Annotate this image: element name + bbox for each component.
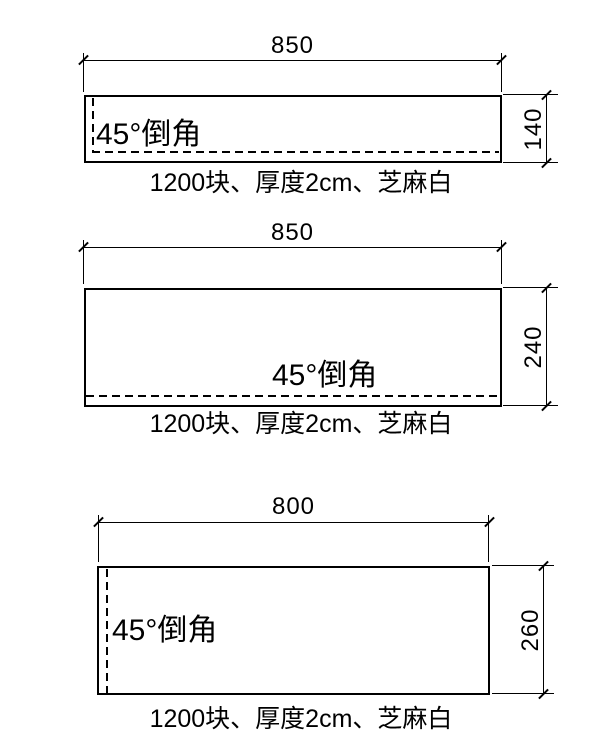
chamfer-label: 45°倒角 — [272, 358, 377, 394]
technical-drawing-canvas: 850 45°倒角 140 1200块、厚度2cm、芝麻白 850 45°倒角 … — [0, 0, 602, 755]
height-dimension-label: 260 — [517, 595, 545, 665]
chamfer-label: 45°倒角 — [112, 613, 217, 649]
chamfer-dash-horizontal — [86, 395, 499, 397]
chamfer-dash-vertical — [92, 98, 94, 152]
extension-line-bottom — [503, 405, 558, 406]
width-dimension-line — [98, 522, 489, 523]
width-dimension-label: 800 — [98, 494, 489, 520]
height-dimension-label: 240 — [520, 312, 548, 382]
extension-line-top — [503, 287, 558, 288]
panel-caption: 1200块、厚度2cm、芝麻白 — [0, 409, 602, 439]
width-dimension-line — [83, 247, 502, 248]
panel-caption: 1200块、厚度2cm、芝麻白 — [0, 168, 602, 198]
width-dimension-label: 850 — [83, 33, 502, 59]
chamfer-dash-vertical — [106, 569, 108, 693]
chamfer-label: 45°倒角 — [96, 117, 201, 153]
height-dimension-label: 140 — [520, 94, 548, 164]
width-dimension-label: 850 — [83, 220, 502, 246]
panel-caption: 1200块、厚度2cm、芝麻白 — [0, 704, 602, 734]
width-dimension-line — [83, 60, 502, 61]
